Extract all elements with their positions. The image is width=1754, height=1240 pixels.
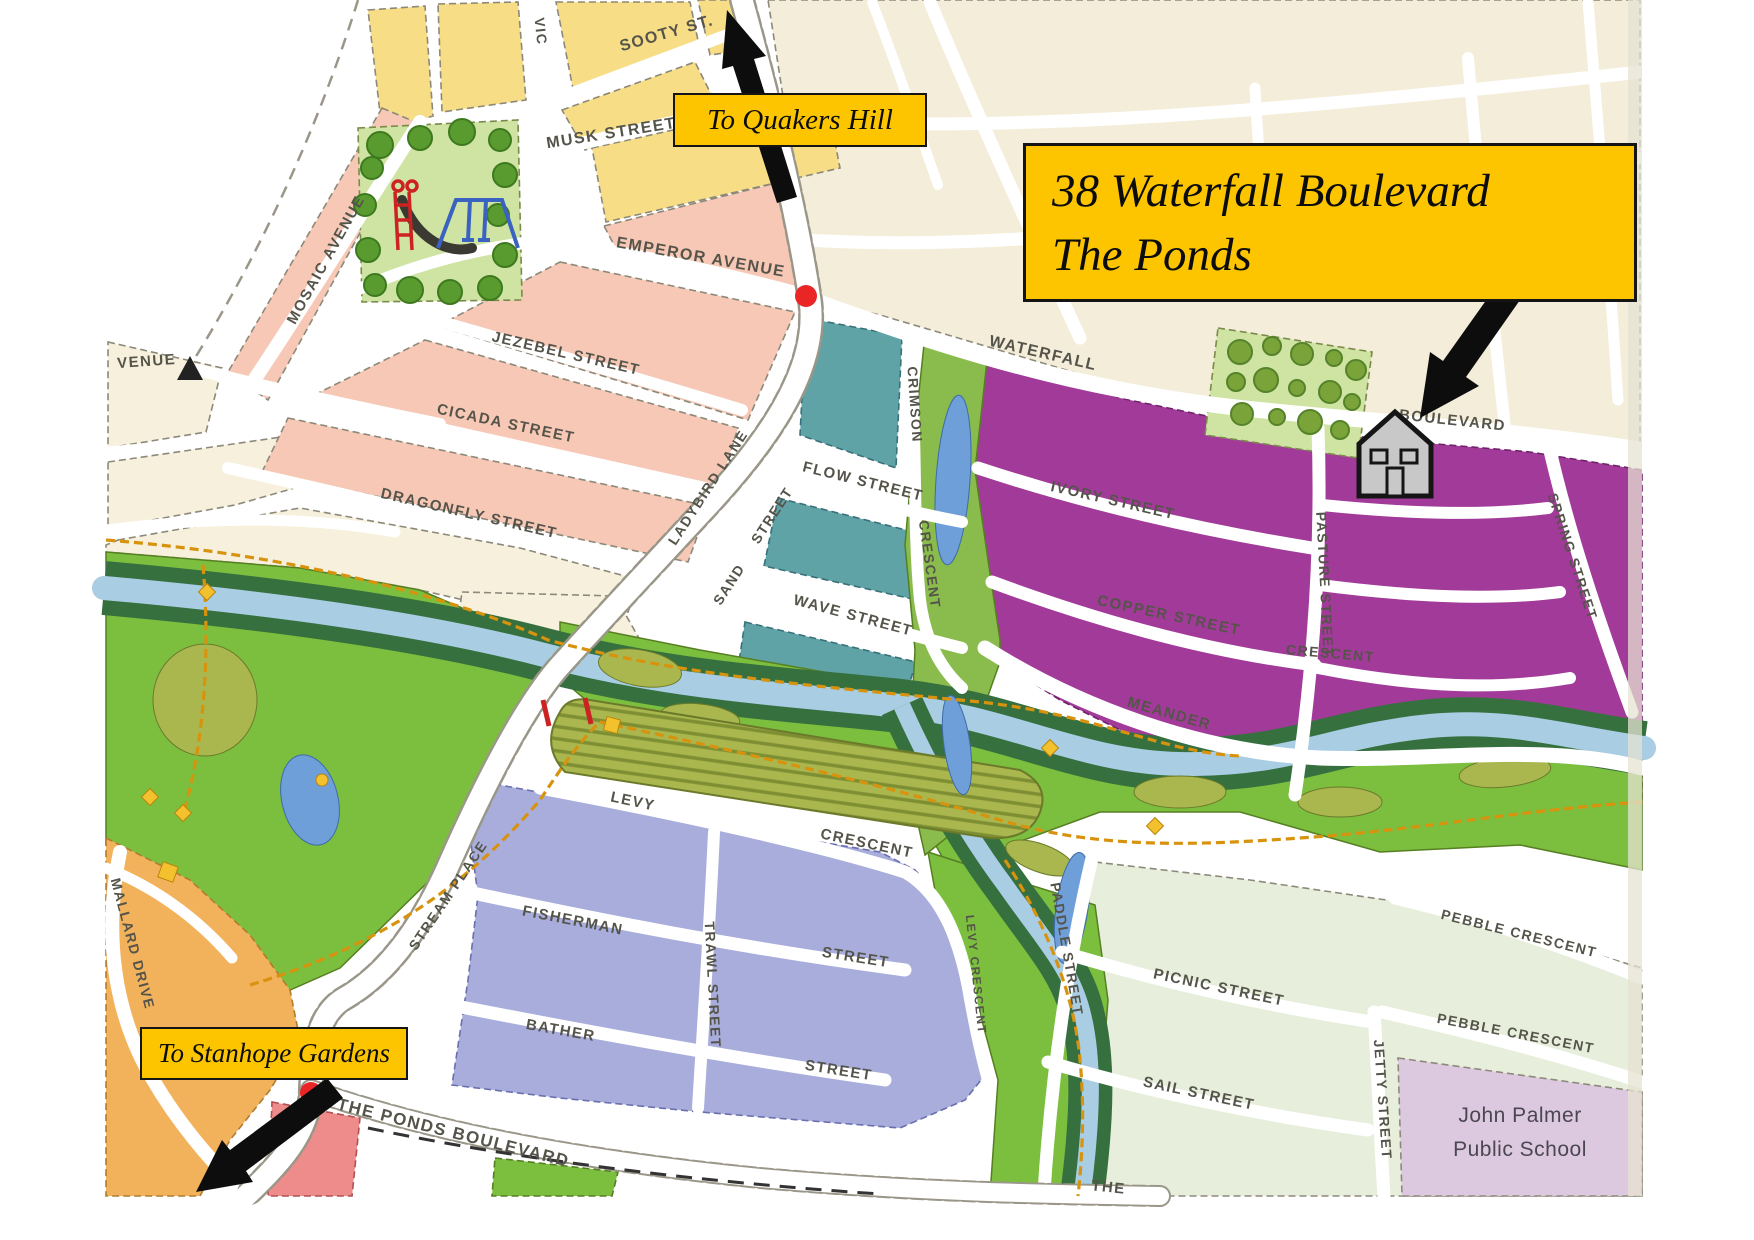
tree: [1227, 373, 1245, 391]
annotation-property-line2: The Ponds: [1052, 223, 1252, 287]
tree: [1228, 340, 1252, 364]
tree: [397, 277, 423, 303]
tree: [1254, 368, 1278, 392]
street-label-vic: VIC: [532, 17, 551, 46]
annotation-property-line1: 38 Waterfall Boulevard: [1052, 159, 1490, 223]
tree: [364, 274, 386, 296]
street-label-wave: WAVE STREET: [792, 592, 915, 640]
olive-patch-2: [1134, 776, 1226, 808]
marker-diamond-5: [1147, 818, 1164, 835]
marker-square-bridge: [603, 716, 620, 733]
tree: [1319, 381, 1341, 403]
tree: [1346, 360, 1366, 380]
tree: [356, 238, 380, 262]
house-window-right: [1401, 450, 1417, 463]
tree: [478, 276, 502, 300]
marker-dot-1: [316, 774, 328, 786]
tree: [1269, 409, 1285, 425]
tree: [1231, 403, 1253, 425]
house-window-left: [1371, 450, 1387, 463]
tree: [449, 119, 475, 145]
tree: [361, 157, 383, 179]
street-label-sand-1: SAND: [710, 561, 748, 608]
tree: [1289, 380, 1305, 396]
tree: [1344, 394, 1360, 410]
bridge-tick-1: [543, 700, 549, 726]
block-yellow-1: [368, 6, 433, 130]
tree: [1263, 337, 1281, 355]
school-label-2: Public School: [1453, 1138, 1587, 1161]
annotation-property-address: 38 Waterfall Boulevard The Ponds: [1023, 143, 1637, 302]
annotation-to-stanhope-gardens-text: To Stanhope Gardens: [158, 1038, 390, 1069]
tree: [1291, 343, 1313, 365]
annotation-to-stanhope-gardens: To Stanhope Gardens: [140, 1027, 408, 1080]
block-yellow-2: [438, 2, 526, 112]
tree: [489, 129, 511, 151]
red-dot-emperor: [795, 285, 817, 307]
annotation-to-quakers-hill: To Quakers Hill: [673, 93, 927, 147]
street-label-ponds-boulevard: THE PONDS BOULEVARD: [335, 1095, 571, 1171]
tree: [493, 163, 517, 187]
annotation-to-quakers-hill-text: To Quakers Hill: [707, 104, 893, 137]
olive-patch-3: [1298, 787, 1382, 817]
house-door: [1387, 468, 1403, 496]
tree: [1298, 410, 1322, 434]
street-label-the-partial: THE: [1090, 1177, 1126, 1198]
tree: [493, 243, 517, 267]
tree: [408, 126, 432, 150]
tree: [1331, 421, 1349, 439]
tree: [438, 280, 462, 304]
tree: [1326, 350, 1342, 366]
map-stage: SOOTY ST. VIC MUSK STREET MOSAIC AVENUE …: [0, 0, 1754, 1240]
school-label-1: John Palmer: [1458, 1104, 1581, 1127]
tree: [367, 132, 393, 158]
